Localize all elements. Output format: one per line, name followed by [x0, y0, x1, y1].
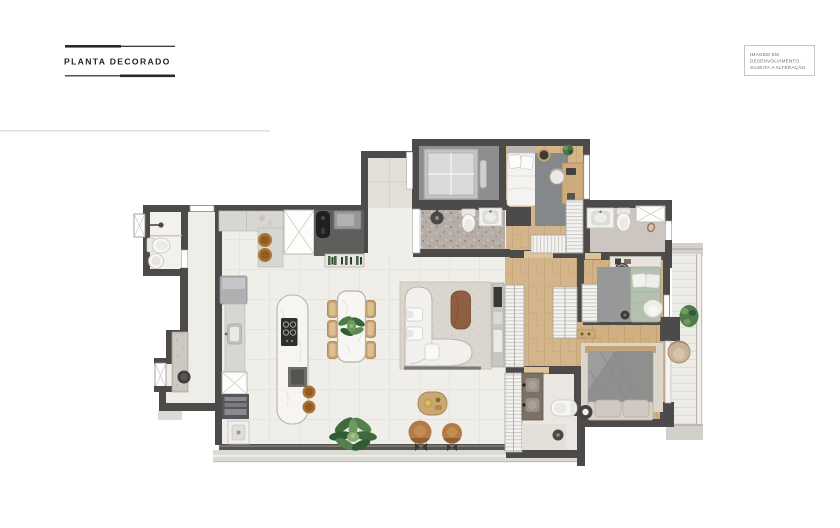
svg-text:IMAGEM EM: IMAGEM EM	[750, 52, 779, 57]
svg-text:SUJEITA A ALTERAÇÃO.: SUJEITA A ALTERAÇÃO.	[750, 64, 807, 70]
svg-text:DESENVOLVIMENTO.: DESENVOLVIMENTO.	[750, 59, 801, 64]
svg-text:PLANTA DECORADO: PLANTA DECORADO	[64, 57, 171, 67]
